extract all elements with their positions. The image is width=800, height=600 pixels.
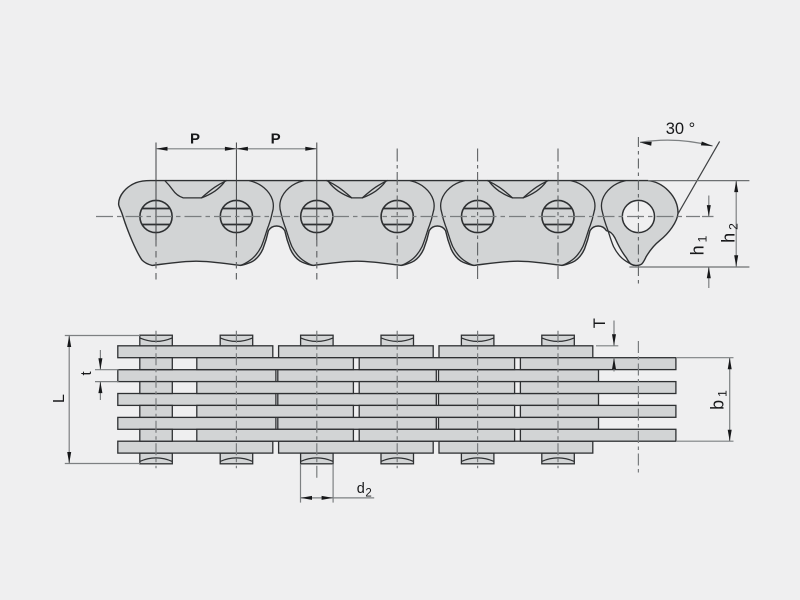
svg-text:T: T [591, 318, 609, 328]
svg-text:30 °: 30 ° [666, 120, 696, 138]
svg-text:L: L [51, 394, 68, 403]
svg-text:P: P [271, 131, 281, 148]
svg-text:P: P [190, 131, 200, 148]
